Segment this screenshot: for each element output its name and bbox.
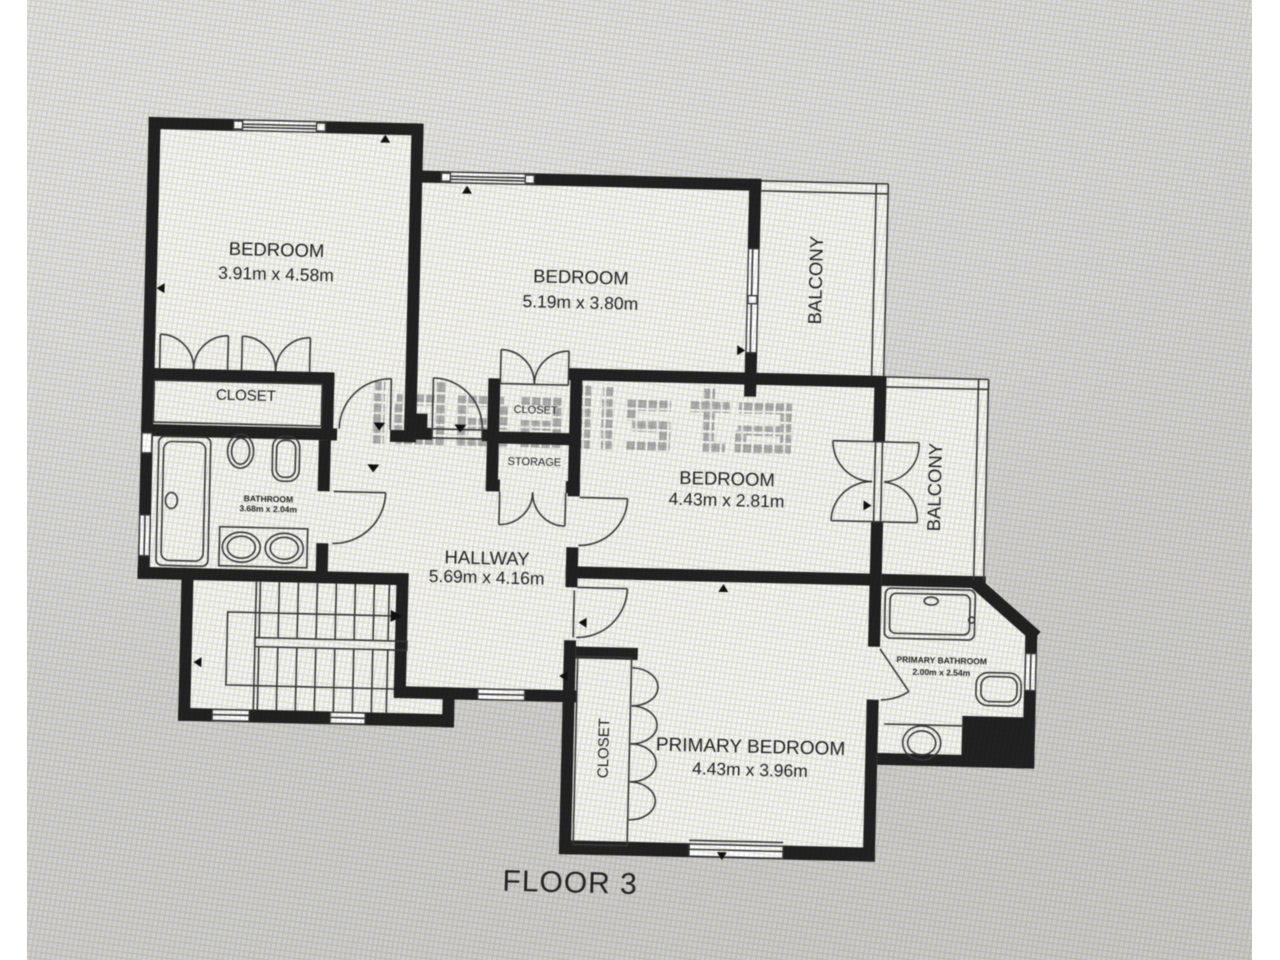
svg-text:CLOSET: CLOSET (514, 404, 559, 417)
svg-text:BEDROOM: BEDROOM (533, 265, 629, 288)
svg-text:3.68m x 2.04m: 3.68m x 2.04m (239, 503, 297, 514)
svg-text:BALCONY: BALCONY (923, 443, 946, 532)
svg-text:CLOSET: CLOSET (595, 718, 613, 778)
svg-text:BEDROOM: BEDROOM (679, 467, 775, 490)
svg-text:4.43m x 2.81m: 4.43m x 2.81m (668, 489, 784, 512)
svg-text:BALCONY: BALCONY (804, 236, 827, 325)
svg-text:STORAGE: STORAGE (507, 456, 561, 469)
svg-text:CLOSET: CLOSET (216, 387, 276, 405)
svg-text:2.00m x 2.54m: 2.00m x 2.54m (912, 667, 970, 678)
svg-text:3.91m x 4.58m: 3.91m x 4.58m (218, 263, 334, 286)
svg-text:5.69m x 4.16m: 5.69m x 4.16m (429, 566, 545, 589)
svg-text:5.19m x 3.80m: 5.19m x 3.80m (522, 291, 638, 314)
svg-text:BEDROOM: BEDROOM (229, 238, 325, 261)
svg-text:FLOOR 3: FLOOR 3 (502, 865, 638, 901)
svg-text:4.43m x 3.96m: 4.43m x 3.96m (692, 758, 808, 781)
